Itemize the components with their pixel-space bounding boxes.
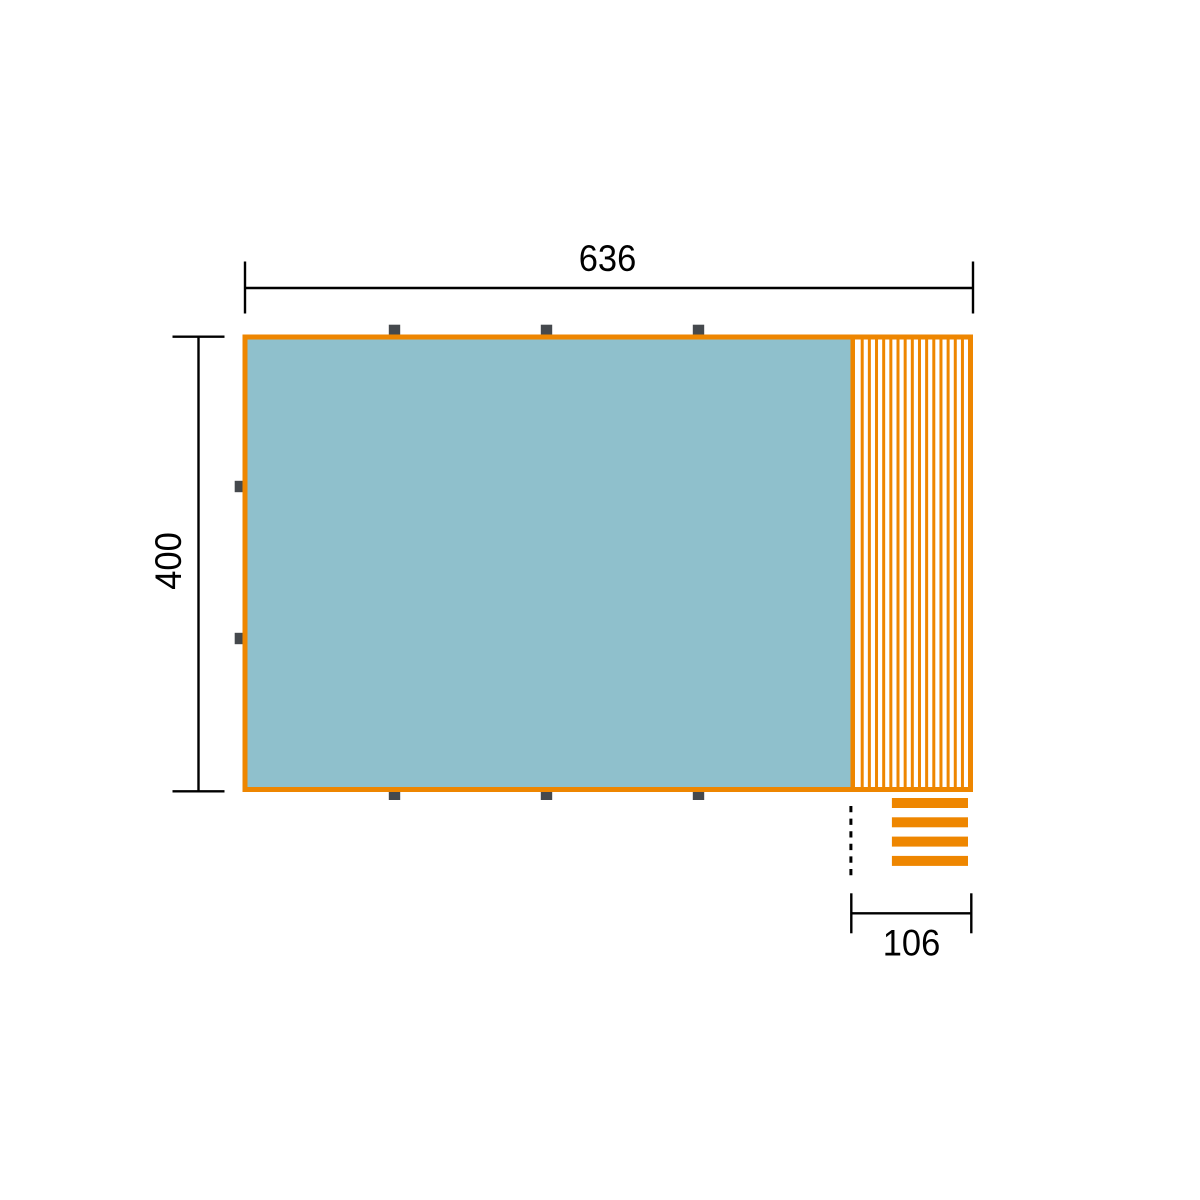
- svg-text:400: 400: [147, 532, 189, 590]
- svg-text:636: 636: [579, 237, 637, 279]
- svg-text:106: 106: [883, 921, 941, 963]
